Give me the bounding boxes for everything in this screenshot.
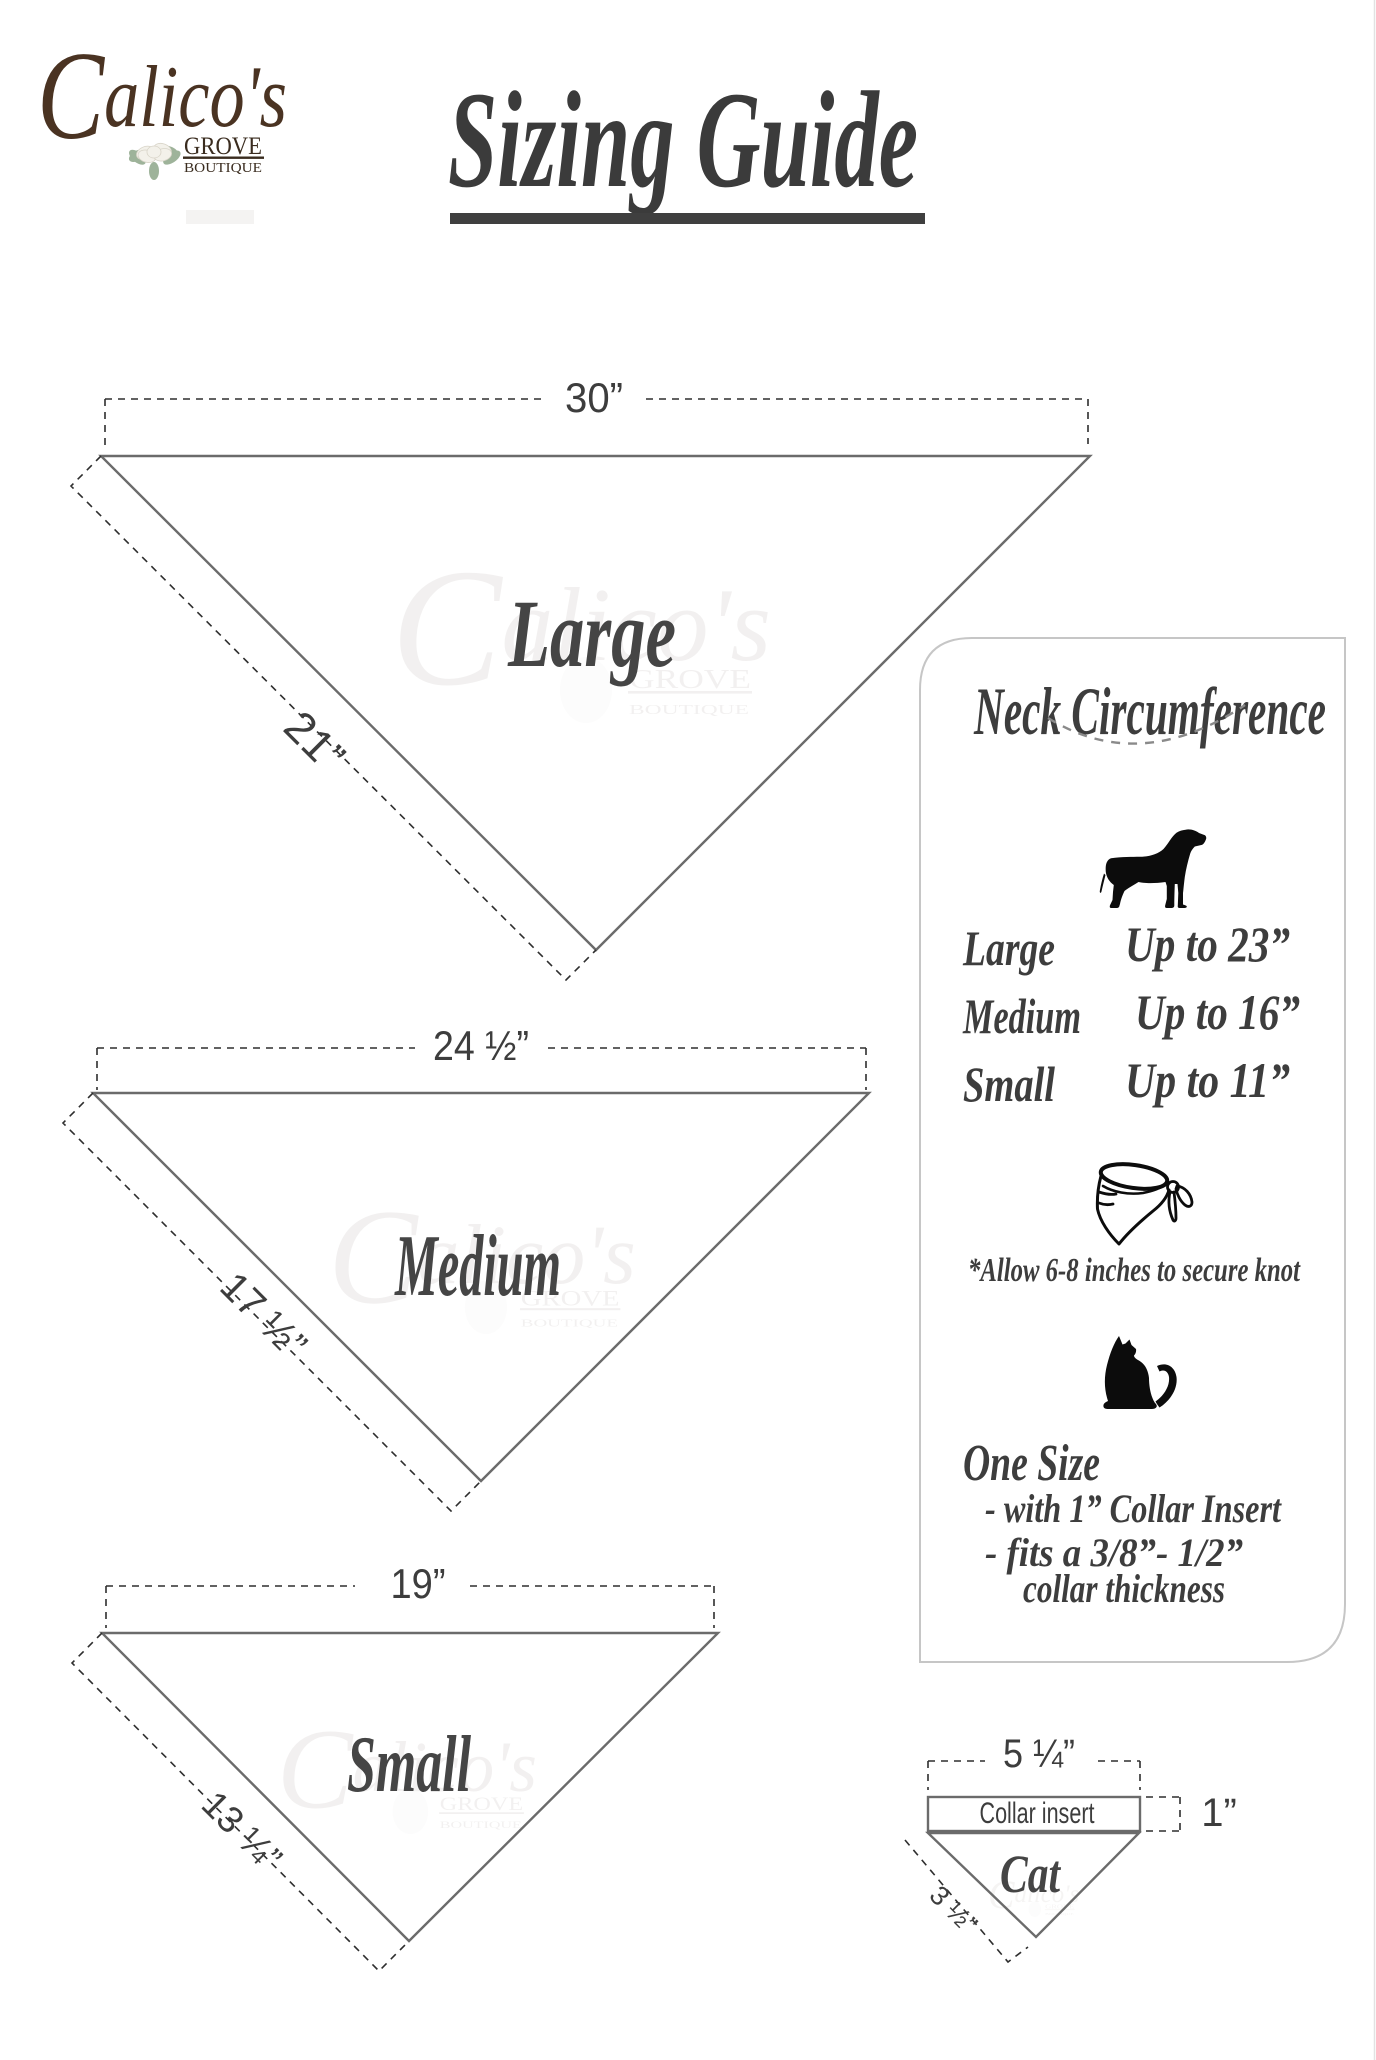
svg-text:19”: 19” — [391, 1560, 446, 1607]
svg-text:Collar insert: Collar insert — [980, 1797, 1095, 1830]
svg-text:- with 1” Collar Insert: - with 1” Collar Insert — [985, 1486, 1283, 1531]
svg-text:Small: Small — [963, 1056, 1055, 1112]
svg-text:*Allow 6-8 inches to secure kn: *Allow 6-8 inches to secure knot — [968, 1252, 1301, 1289]
svg-text:Up to 23”: Up to 23” — [1125, 916, 1290, 972]
svg-text:Cat: Cat — [1000, 1844, 1062, 1904]
svg-text:Neck Circumference: Neck Circumference — [973, 673, 1326, 749]
svg-text:1”: 1” — [1201, 1791, 1237, 1835]
svg-text:Sizing Guide: Sizing Guide — [448, 63, 918, 216]
svg-text:Up to 16”: Up to 16” — [1135, 984, 1300, 1040]
svg-text:One Size: One Size — [963, 1435, 1100, 1492]
svg-text:GROVE: GROVE — [184, 133, 262, 160]
svg-text:BOUTIQUE: BOUTIQUE — [184, 160, 262, 175]
svg-text:24 ½”: 24 ½” — [433, 1022, 529, 1069]
svg-text:Large: Large — [507, 580, 676, 687]
svg-text:Up to 11”: Up to 11” — [1125, 1052, 1290, 1108]
svg-text:5 ¼”: 5 ¼” — [1003, 1732, 1075, 1776]
svg-text:Medium: Medium — [394, 1218, 561, 1315]
svg-text:30”: 30” — [565, 374, 623, 421]
svg-text:collar thickness: collar thickness — [1023, 1566, 1225, 1611]
svg-text:Medium: Medium — [962, 988, 1081, 1044]
svg-text:Large: Large — [962, 920, 1055, 976]
svg-text:Small: Small — [347, 1721, 472, 1809]
